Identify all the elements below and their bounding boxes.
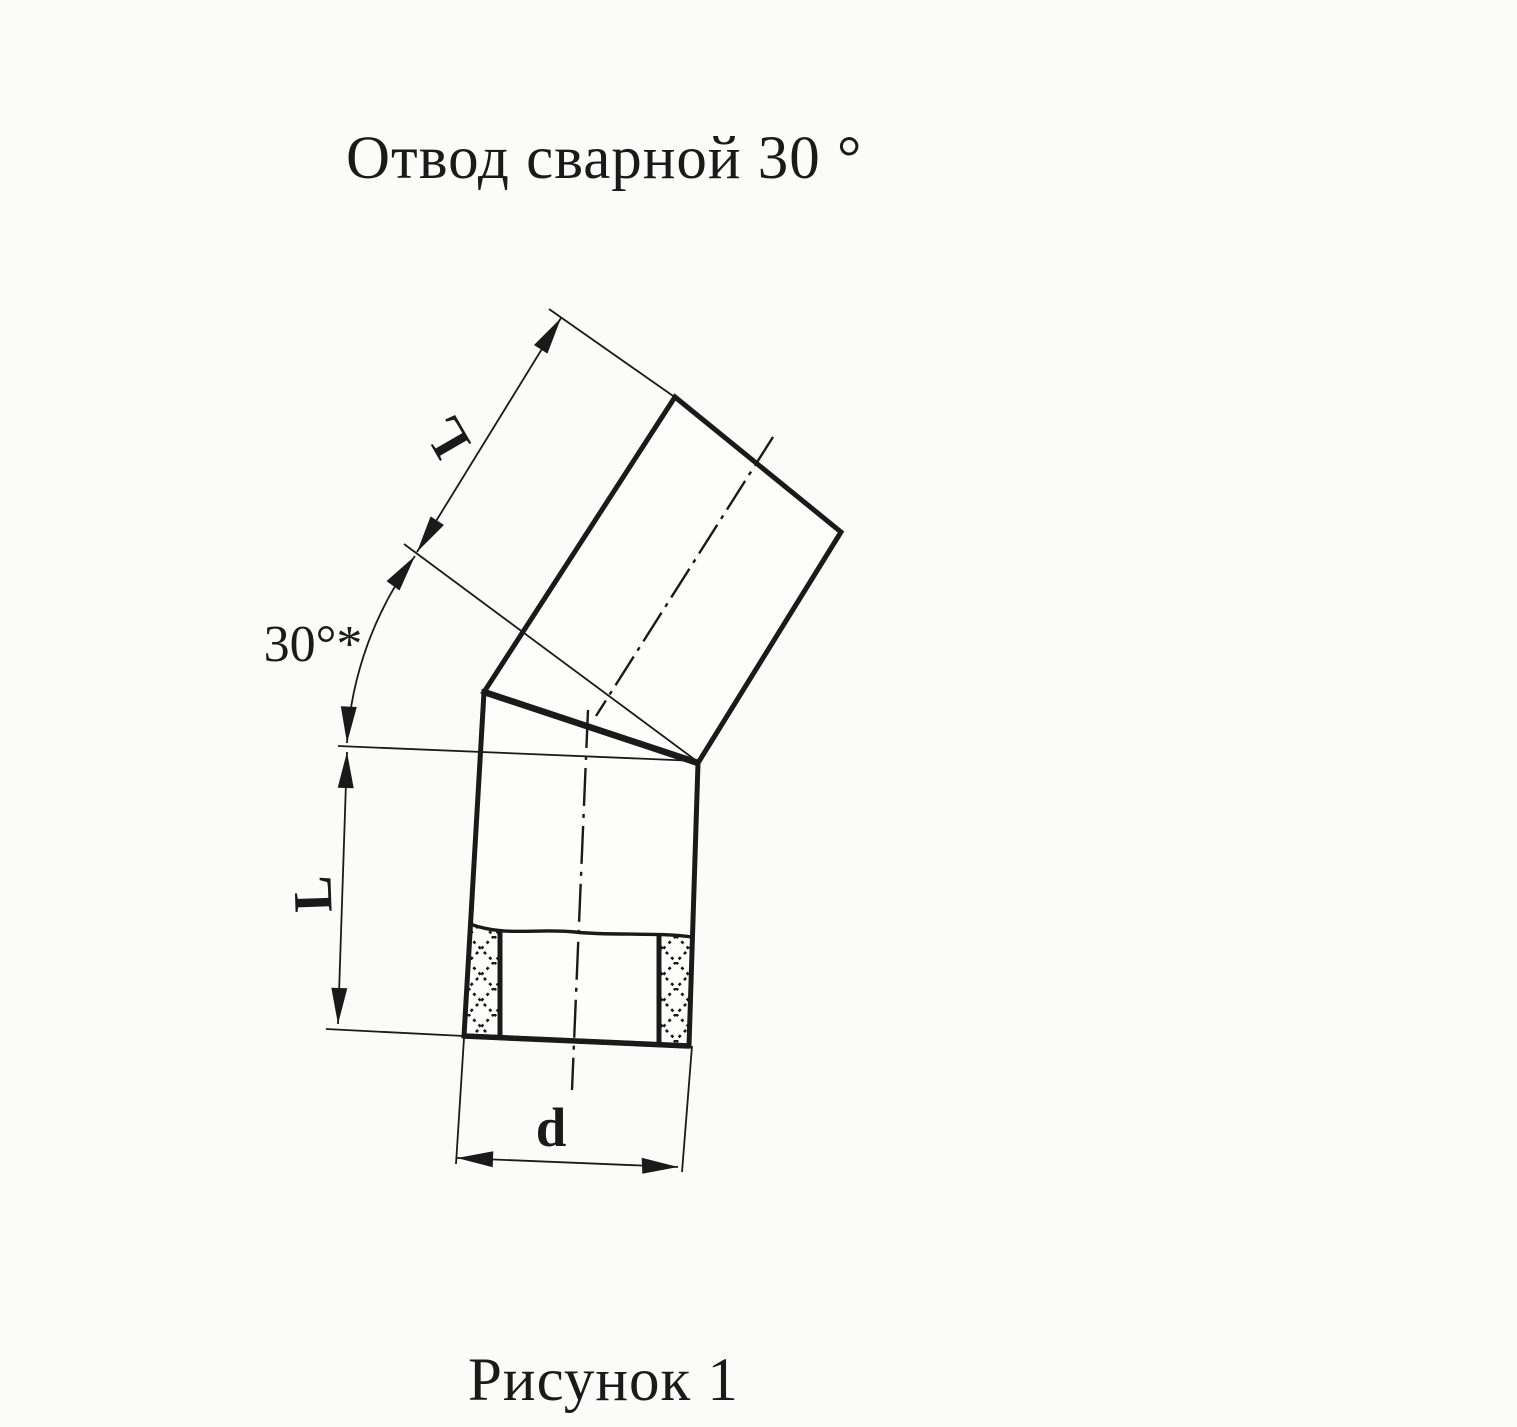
- label-diameter: d: [521, 1098, 581, 1158]
- arrowhead-d-left: [457, 1151, 493, 1167]
- arrowhead-L-lower-top: [338, 752, 354, 788]
- extension-d-right: [682, 1046, 692, 1172]
- scanned-drawing-page: Отвод сварной 30 ° L 30°* L d Рисунок 1: [0, 0, 1517, 1427]
- extension-bottom: [326, 1029, 464, 1036]
- elbow-drawing: [0, 0, 1517, 1427]
- arrowhead-L-upper-top: [534, 318, 561, 354]
- arrowhead-L-upper-bottom: [417, 516, 444, 552]
- drawing-title: Отвод сварной 30 °: [346, 124, 862, 194]
- arrowhead-d-right: [642, 1158, 678, 1174]
- figure-caption: Рисунок 1: [468, 1346, 739, 1416]
- extension-top-edge: [549, 309, 676, 398]
- extension-d-left: [456, 1038, 464, 1164]
- label-angle: 30°*: [243, 613, 383, 677]
- hatch-left-wall: [466, 925, 500, 1039]
- arrowhead-arc-top: [387, 556, 416, 591]
- hatch-right-wall: [659, 935, 692, 1045]
- label-length-lower: L: [282, 863, 344, 925]
- arrowhead-L-lower-bottom: [331, 988, 347, 1024]
- arrowhead-arc-bottom: [341, 706, 357, 743]
